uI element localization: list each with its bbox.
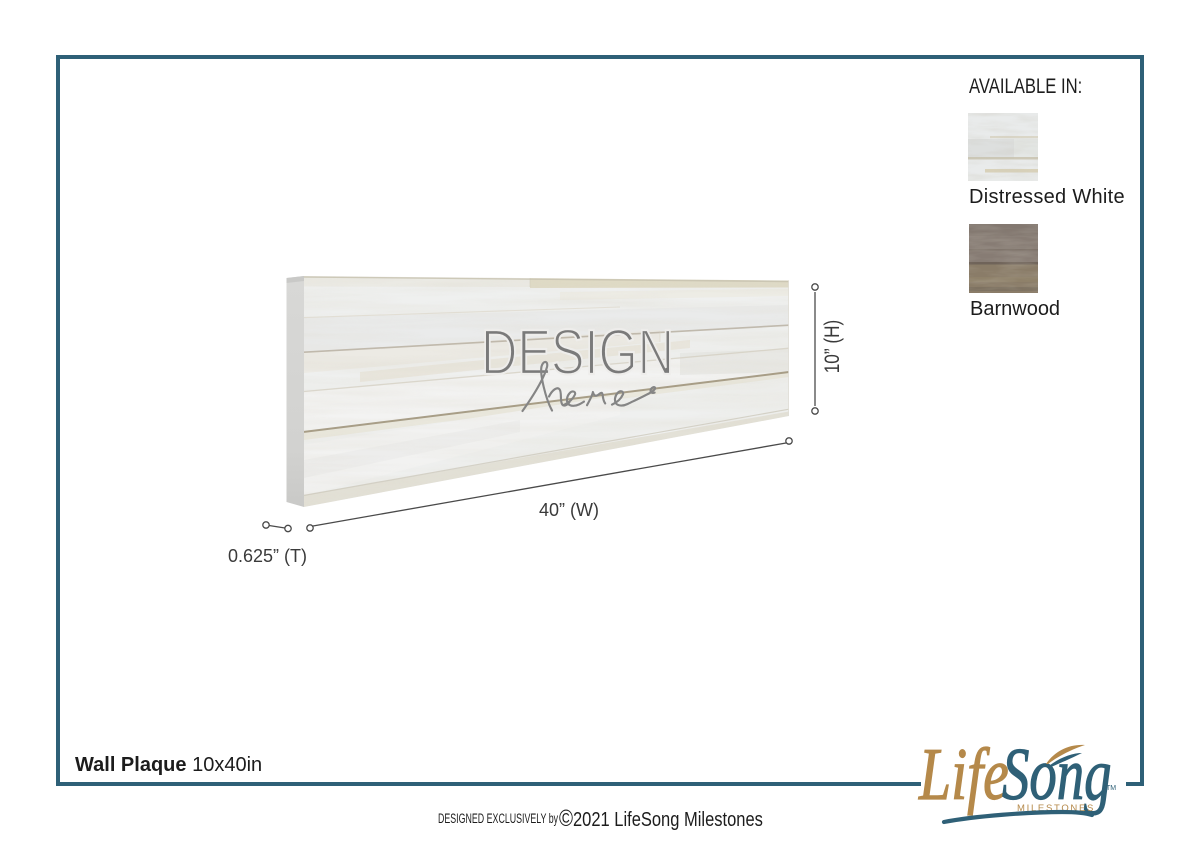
svg-text:TM: TM bbox=[1106, 785, 1116, 792]
svg-text:Life: Life bbox=[918, 734, 1009, 815]
